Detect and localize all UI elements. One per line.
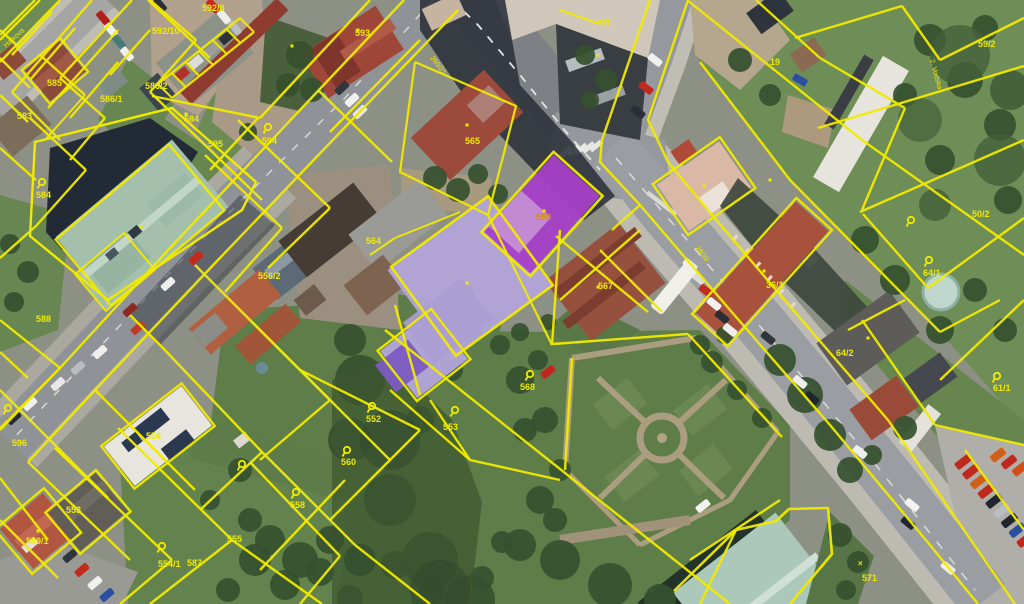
- svg-text:59/2: 59/2: [978, 39, 996, 49]
- svg-text:586/1: 586/1: [100, 94, 123, 104]
- svg-text:36/1: 36/1: [766, 280, 784, 290]
- svg-text:555: 555: [227, 534, 242, 544]
- svg-text:595: 595: [208, 139, 223, 149]
- svg-text:50/2: 50/2: [972, 209, 990, 219]
- svg-text:583: 583: [17, 111, 32, 121]
- svg-text:594: 594: [262, 136, 277, 146]
- svg-text:587: 587: [187, 558, 202, 568]
- svg-text:554/1: 554/1: [158, 559, 181, 569]
- svg-text:592/8: 592/8: [202, 3, 225, 13]
- svg-text:64/2: 64/2: [836, 348, 854, 358]
- svg-text:553: 553: [443, 422, 458, 432]
- svg-text:552: 552: [366, 414, 381, 424]
- svg-text:560: 560: [341, 457, 356, 467]
- svg-text:571: 571: [862, 573, 877, 583]
- svg-text:596: 596: [12, 438, 27, 448]
- svg-text:567: 567: [598, 281, 613, 291]
- svg-text:556/2: 556/2: [258, 271, 281, 281]
- svg-text:558: 558: [290, 500, 305, 510]
- svg-text:564: 564: [366, 236, 381, 246]
- svg-text:585: 585: [47, 78, 62, 88]
- svg-text:×: ×: [858, 559, 863, 568]
- svg-text:559: 559: [536, 212, 551, 222]
- svg-text:61/1: 61/1: [993, 383, 1011, 393]
- svg-text:19: 19: [770, 57, 780, 67]
- svg-text:568: 568: [520, 382, 535, 392]
- svg-text:592/10: 592/10: [152, 26, 180, 36]
- svg-text:586/2: 586/2: [145, 81, 168, 91]
- svg-text:553: 553: [66, 505, 81, 515]
- svg-text:64/1: 64/1: [923, 268, 941, 278]
- svg-text:588: 588: [36, 314, 51, 324]
- svg-text:584: 584: [36, 190, 51, 200]
- svg-text:565: 565: [465, 136, 480, 146]
- svg-text:3/1: 3/1: [598, 18, 611, 28]
- svg-text:559/1: 559/1: [26, 536, 49, 546]
